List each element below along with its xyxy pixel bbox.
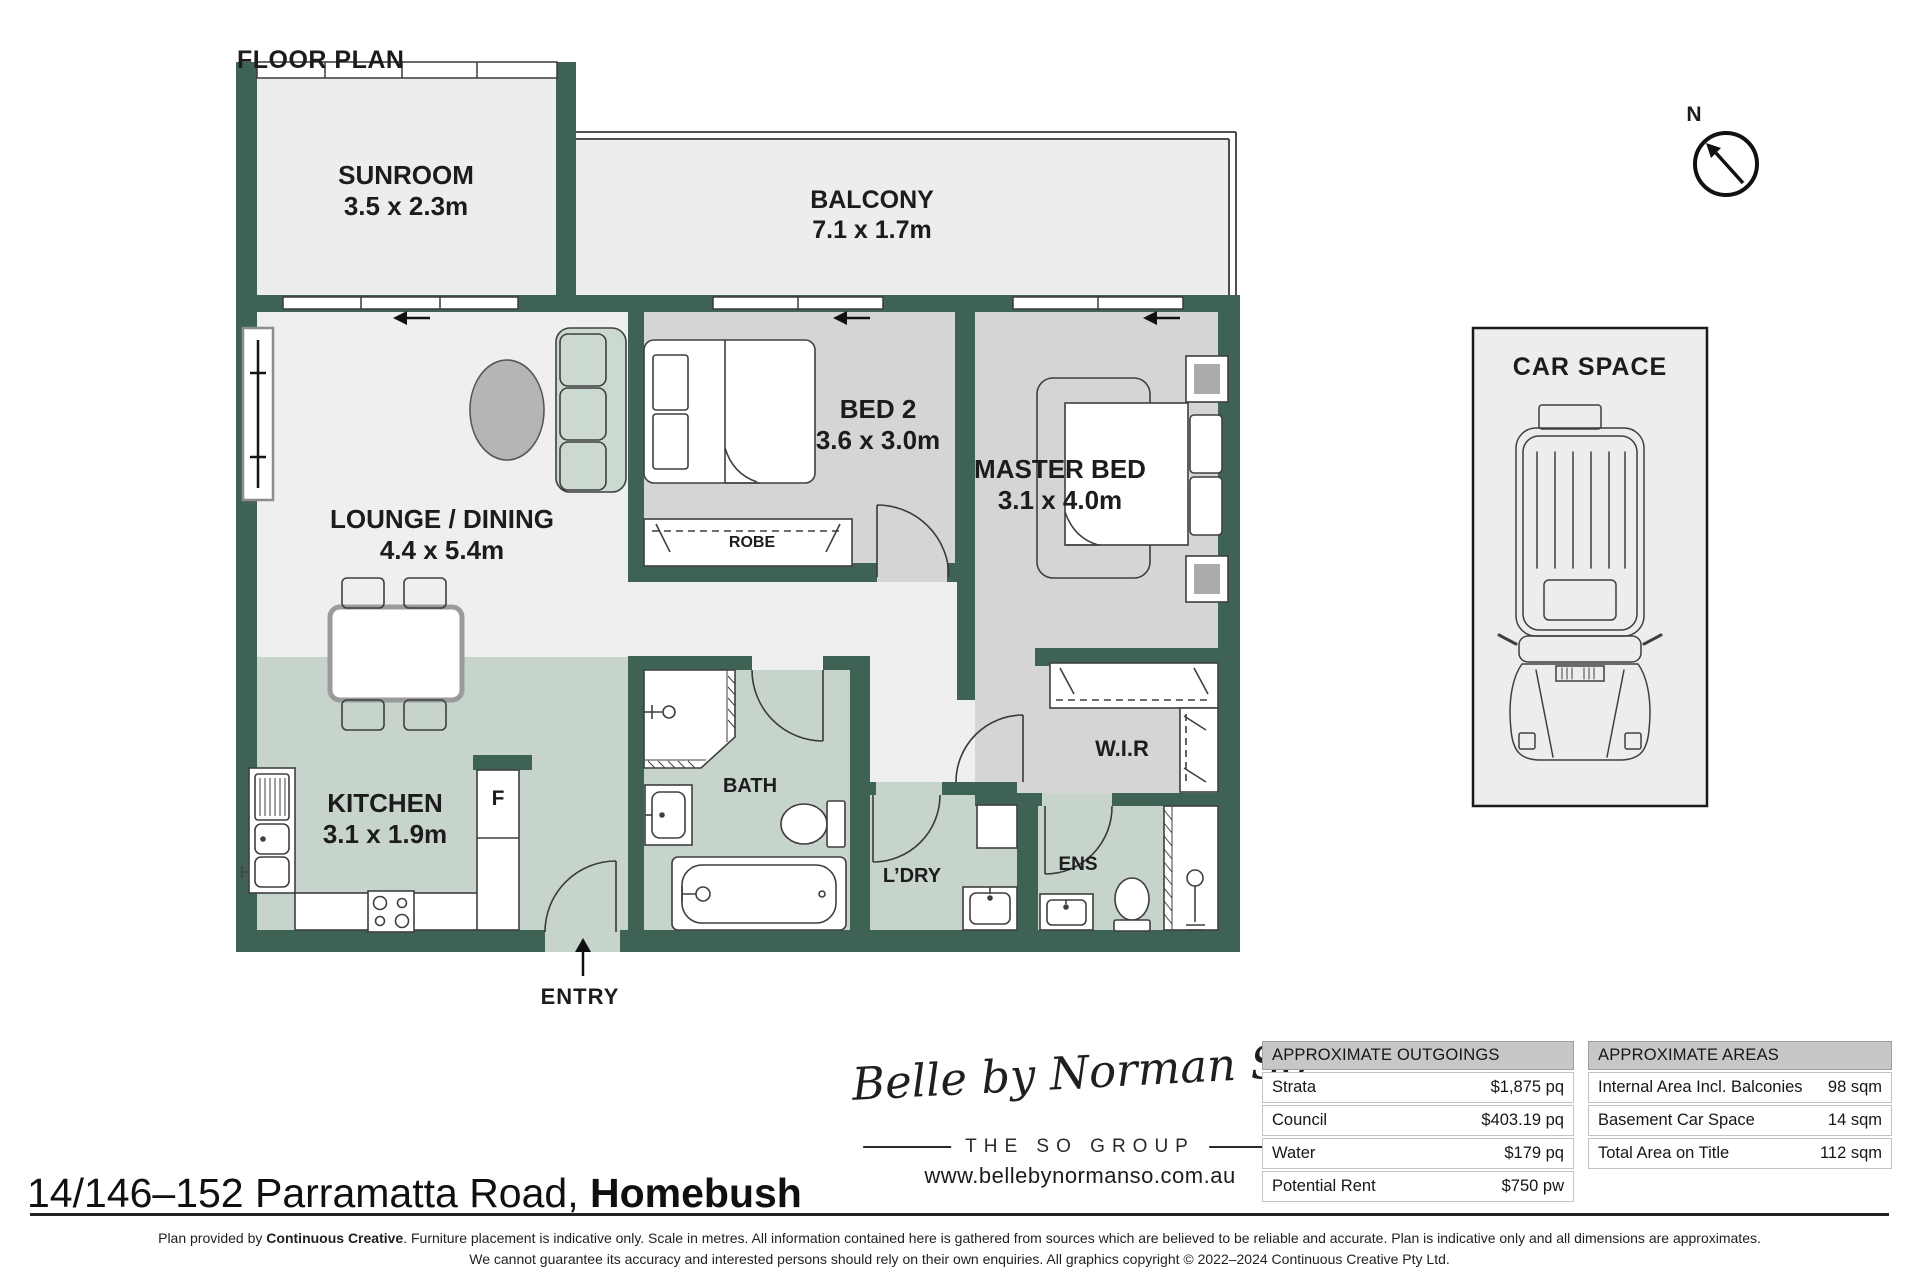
row-value: $1,875 pq xyxy=(1491,1073,1564,1102)
table-row: Strata $1,875 pq xyxy=(1262,1072,1574,1103)
row-label: Total Area on Title xyxy=(1598,1139,1729,1168)
row-label: Basement Car Space xyxy=(1598,1106,1755,1135)
lounge-side-window xyxy=(243,328,273,500)
room-label-ensuite: ENS xyxy=(1058,854,1097,877)
room-dims: 4.4 x 5.4m xyxy=(330,535,554,566)
washer xyxy=(977,805,1017,848)
room-label-balcony: BALCONY 7.1 x 1.7m xyxy=(810,185,934,245)
kitchen-sink-bench xyxy=(242,768,295,893)
logo-rule-left xyxy=(863,1146,951,1148)
table-row: Internal Area Incl. Balconies 98 sqm xyxy=(1588,1072,1892,1103)
room-name: SUNROOM xyxy=(338,160,474,191)
fridge-label: F xyxy=(492,786,505,811)
room-label-laundry: L’DRY xyxy=(883,864,941,888)
room-label-sunroom: SUNROOM 3.5 x 2.3m xyxy=(338,160,474,222)
address-suburb: Homebush xyxy=(590,1170,802,1216)
row-label: Council xyxy=(1272,1106,1327,1135)
room-name: LOUNGE / DINING xyxy=(330,504,554,535)
table-row: Total Area on Title 112 sqm xyxy=(1588,1138,1892,1169)
room-label-bed2: BED 2 3.6 x 3.0m xyxy=(816,394,940,456)
disclaimer-line-2: We cannot guarantee its accuracy and int… xyxy=(0,1251,1919,1267)
agency-group-line: THE SO GROUP xyxy=(863,1136,1297,1158)
room-label-kitchen: KITCHEN 3.1 x 1.9m xyxy=(323,788,447,850)
address-street: 14/146–152 Parramatta Road, xyxy=(27,1170,590,1216)
car-space-box xyxy=(1473,328,1707,806)
room-label-robe: ROBE xyxy=(729,533,775,552)
table-row: Potential Rent $750 pw xyxy=(1262,1171,1574,1202)
car-space-title: CAR SPACE xyxy=(1513,352,1667,382)
row-value: 112 sqm xyxy=(1820,1139,1882,1168)
bathtub xyxy=(672,857,846,930)
ens-toilet xyxy=(1114,878,1150,931)
bath-toilet xyxy=(781,801,845,847)
room-label-bath: BATH xyxy=(723,774,777,798)
compass-n-label: N xyxy=(1686,102,1701,127)
oval-table xyxy=(470,360,544,460)
room-name: KITCHEN xyxy=(323,788,447,819)
agency-website: www.bellebynormanso.com.au xyxy=(924,1163,1235,1189)
wir-robe-right xyxy=(1180,708,1218,792)
row-label: Potential Rent xyxy=(1272,1172,1376,1201)
property-address: 14/146–152 Parramatta Road, Homebush xyxy=(27,1170,802,1217)
outgoings-table: APPROXIMATE OUTGOINGS Strata $1,875 pq C… xyxy=(1262,1041,1574,1202)
wir-robe-top xyxy=(1050,663,1218,708)
room-label-lounge: LOUNGE / DINING 4.4 x 5.4m xyxy=(330,504,554,566)
laundry-tub xyxy=(963,887,1017,930)
row-value: 14 sqm xyxy=(1828,1106,1882,1135)
row-value: $179 pq xyxy=(1504,1139,1564,1168)
outgoings-header: APPROXIMATE OUTGOINGS xyxy=(1262,1041,1574,1070)
disclaimer-text: . Furniture placement is indicative only… xyxy=(403,1230,1761,1246)
room-name: BED 2 xyxy=(816,394,940,425)
bed2-bed xyxy=(644,340,815,483)
entry-label: ENTRY xyxy=(541,984,620,1010)
disclaimer-line-1: Plan provided by Continuous Creative. Fu… xyxy=(0,1230,1919,1246)
room-label-master: MASTER BED 3.1 x 4.0m xyxy=(974,454,1146,516)
row-value: $750 pw xyxy=(1502,1172,1564,1201)
footer-divider xyxy=(30,1213,1889,1216)
floor-plan-page: { "page_title": "FLOOR PLAN", "palette":… xyxy=(0,0,1919,1280)
areas-table: APPROXIMATE AREAS Internal Area Incl. Ba… xyxy=(1588,1041,1892,1169)
room-label-wir: W.I.R xyxy=(1095,736,1149,762)
table-row: Water $179 pq xyxy=(1262,1138,1574,1169)
row-value: $403.19 pq xyxy=(1481,1106,1564,1135)
table-row: Basement Car Space 14 sqm xyxy=(1588,1105,1892,1136)
page-title: FLOOR PLAN xyxy=(237,46,405,75)
disclaimer-text: Plan provided by xyxy=(158,1230,266,1246)
table-row: Council $403.19 pq xyxy=(1262,1105,1574,1136)
row-value: 98 sqm xyxy=(1828,1073,1882,1102)
room-name: BALCONY xyxy=(810,185,934,215)
disclaimer-bold: Continuous Creative xyxy=(266,1230,403,1246)
row-label: Strata xyxy=(1272,1073,1316,1102)
sofa xyxy=(556,328,626,492)
room-name: MASTER BED xyxy=(974,454,1146,485)
areas-header: APPROXIMATE AREAS xyxy=(1588,1041,1892,1070)
bath-vanity xyxy=(645,785,692,845)
room-dims: 3.5 x 2.3m xyxy=(338,191,474,222)
ens-vanity xyxy=(1040,894,1093,930)
compass-icon xyxy=(1695,133,1757,195)
ens-shower xyxy=(1164,806,1218,930)
row-label: Internal Area Incl. Balconies xyxy=(1598,1073,1803,1102)
room-dims: 3.1 x 1.9m xyxy=(323,819,447,850)
row-label: Water xyxy=(1272,1139,1315,1168)
room-dims: 3.6 x 3.0m xyxy=(816,425,940,456)
room-dims: 3.1 x 4.0m xyxy=(974,485,1146,516)
agency-group-name: THE SO GROUP xyxy=(965,1136,1195,1158)
room-dims: 7.1 x 1.7m xyxy=(810,215,934,245)
stove xyxy=(368,891,414,932)
